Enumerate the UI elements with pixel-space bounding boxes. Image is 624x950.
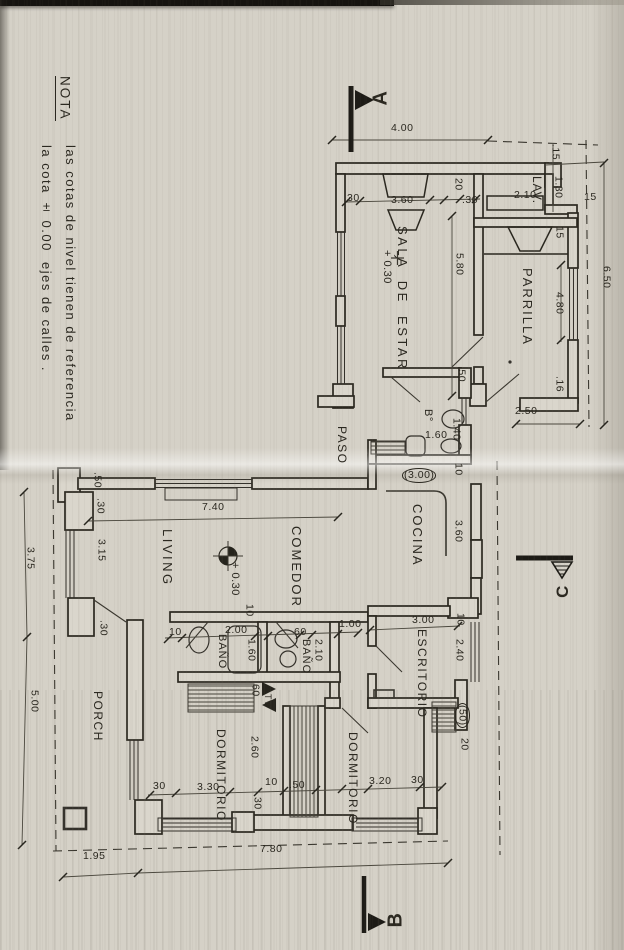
room-label-banio-1: BAÑO [216,634,227,669]
scanned-floor-plan-page: NOTA las cotas de nivel tienen de refere… [0,0,624,950]
dimension-label-horizontal: 7.80 [260,844,282,855]
dimension-label-vertical: 3.75 [25,547,36,569]
dimension-label-vertical: 30 [252,797,263,810]
room-label-escritorio: ESCRITORIO [416,629,428,718]
dimension-label-vertical: 5.80 [454,253,465,275]
dimension-label-horizontal: 7.40 [202,502,224,513]
room-label-sala-de-estar: SALA DE ESTAR [396,226,409,371]
note-line-2: la cota ± 0.00 ejes de calles . [40,145,53,372]
room-label-living: LIVING [161,529,174,587]
room-label-paso: PASO [336,426,348,464]
dimension-label-horizontal: 2.10 [514,190,536,201]
dimension-label-vertical: .30 [95,498,106,514]
dimension-label-vertical: .50 [456,366,467,382]
section-marker-a: A [370,91,390,106]
dimension-label-vertical: 3.60 [453,520,464,542]
dimension-label-vertical: 15 [554,226,565,239]
dimension-label-vertical: (50) [455,703,470,728]
dimension-label-horizontal: 10 [265,777,278,788]
room-label-comedor: COMEDOR [290,526,303,608]
dimension-label-vertical: 10 [244,604,255,617]
dimension-label-horizontal: .50 [289,780,305,791]
dimension-label-horizontal: 3.30 [197,782,219,793]
section-marker-b: B [385,913,405,928]
note-line-1: las cotas de nivel tienen de referencia [64,145,77,422]
dimension-label-vertical: 2.10 [313,639,324,661]
dimension-label-vertical: 1.40 [451,418,462,440]
dimension-label-vertical: 3.15 [96,539,107,561]
dimension-label-vertical: 20 [453,178,464,191]
dimension-label-vertical: 2.40 [454,639,465,661]
dimension-label-horizontal: 1.60 [425,430,447,441]
dimension-label-horizontal: 30 [411,775,424,786]
dimension-label-horizontal: 1.95 [83,851,105,862]
dimension-label-horizontal: 3.20 [369,776,391,787]
dimension-label-horizontal: 15 [584,192,597,203]
dimension-label-horizontal: 30 [347,193,360,204]
level-mark-living: + 0.30 [229,562,240,596]
dimension-label-horizontal: 2.00 [225,625,247,636]
room-label-banio-chico: B° [422,409,433,422]
room-label-banio-2: BAÑO [300,639,311,674]
dimension-label-horizontal: .30 [462,195,478,206]
dimension-label-vertical: .16 [554,376,565,392]
dimension-label-horizontal: (3.00) [402,468,436,483]
dimension-label-vertical: 4.80 [554,292,565,314]
dimension-label-horizontal: 30 [153,781,166,792]
dimension-label-vertical: 10 [455,613,466,626]
room-label-parrilla: PARRILLA [521,268,534,346]
dimension-label-horizontal: 1.00 [339,619,361,630]
dimension-label-horizontal: 4.00 [391,123,413,134]
room-label-cocina: COCINA [411,504,424,567]
level-mark-sala: + 0.30 [381,250,392,284]
dimension-label-vertical: .30 [98,620,109,636]
dimension-label-vertical: 10 [453,463,464,476]
dimension-label-vertical: 6.50 [601,266,612,288]
dimension-label-vertical: 5.00 [29,690,40,712]
note-title: NOTA [55,76,72,121]
level-symbols [213,251,404,571]
dimension-label-vertical: .50 [92,472,103,488]
dimension-label-horizontal: 3.60 [391,195,413,206]
dimension-label-vertical: 1.60 [246,639,257,661]
dimension-label-vertical: .15 [550,144,561,160]
dimension-label-horizontal: 60 [294,627,307,638]
dimension-label-horizontal: 10 [169,627,182,638]
label-tv-nook: TV [263,694,272,707]
dimension-label-vertical: 2.60 [249,736,260,758]
dimension-label-horizontal: 2.50 [515,406,537,417]
room-label-dormitorio-2: DORMITORIO [347,732,359,825]
room-label-dormitorio-1: DORMITORIO [215,729,227,822]
dimension-label-vertical: 60 [250,684,261,697]
room-label-porch: PORCH [92,691,104,742]
section-marker-c: C [554,585,571,598]
dimension-label-horizontal: 3.00 [412,615,434,626]
dimension-label-vertical: 1.30 [553,176,564,198]
section-marker-lines [351,86,573,933]
dimension-label-vertical: 20 [459,738,470,751]
